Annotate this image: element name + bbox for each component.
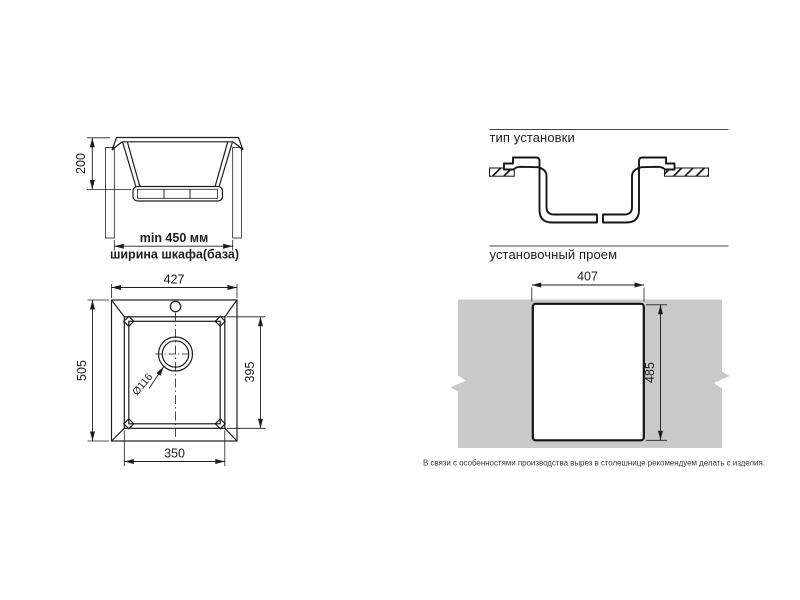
dimension-drain-diameter: Ø116 (130, 367, 164, 398)
cabinet-cross-section-view: 200 min 450 мм ширина шкафа(база) (74, 138, 243, 262)
sink-base (133, 187, 223, 202)
drawing-canvas: 200 min 450 мм ширина шкафа(база) (0, 0, 800, 600)
cabinet-wall-right (233, 148, 242, 239)
cutout-height-label: 485 (643, 362, 657, 383)
cutout-rect (533, 304, 644, 441)
dimension-overall-depth: 505 (75, 300, 109, 441)
sink-mount-profile-right (603, 158, 675, 223)
dimension-bowl-width: 350 (124, 431, 225, 467)
mounting-opening-header: установочный проем (490, 247, 618, 262)
bowl-depth-label: 395 (243, 362, 257, 383)
overall-depth-label: 505 (75, 360, 89, 381)
dimension-bowl-depth: 395 (227, 317, 266, 429)
rim-inner-edge (124, 317, 225, 429)
cutout-width-label: 407 (577, 270, 598, 284)
overall-width-label: 427 (164, 273, 185, 287)
depth-dim-label: 200 (74, 153, 88, 174)
sink-installation-drawing: 200 min 450 мм ширина шкафа(база) (0, 0, 800, 600)
faucet-hole (170, 301, 180, 311)
dimension-overall-width: 427 (112, 273, 238, 299)
sink-rim-profile (112, 138, 243, 151)
mounting-opening-section: установочный проем 407 485 В связи с осо… (423, 246, 765, 468)
dimension-depth-200: 200 (74, 138, 131, 190)
installation-type-header: тип установки (490, 130, 575, 145)
production-note: В связи с особенностями производства выр… (423, 459, 765, 468)
cabinet-wall-left (106, 148, 115, 239)
installation-type-section: тип установки (490, 130, 729, 223)
sink-mount-profile-left (504, 158, 597, 223)
min-width-label: min 450 мм (140, 231, 209, 245)
sink-top-view: Ø116 427 505 395 350 (75, 273, 266, 467)
bowl-width-label: 350 (164, 447, 185, 461)
dimension-cutout-width: 407 (532, 270, 644, 302)
dimension-cabinet-width: min 450 мм ширина шкафа(база) (110, 231, 239, 262)
cabinet-width-label: ширина шкафа(база) (110, 248, 239, 262)
